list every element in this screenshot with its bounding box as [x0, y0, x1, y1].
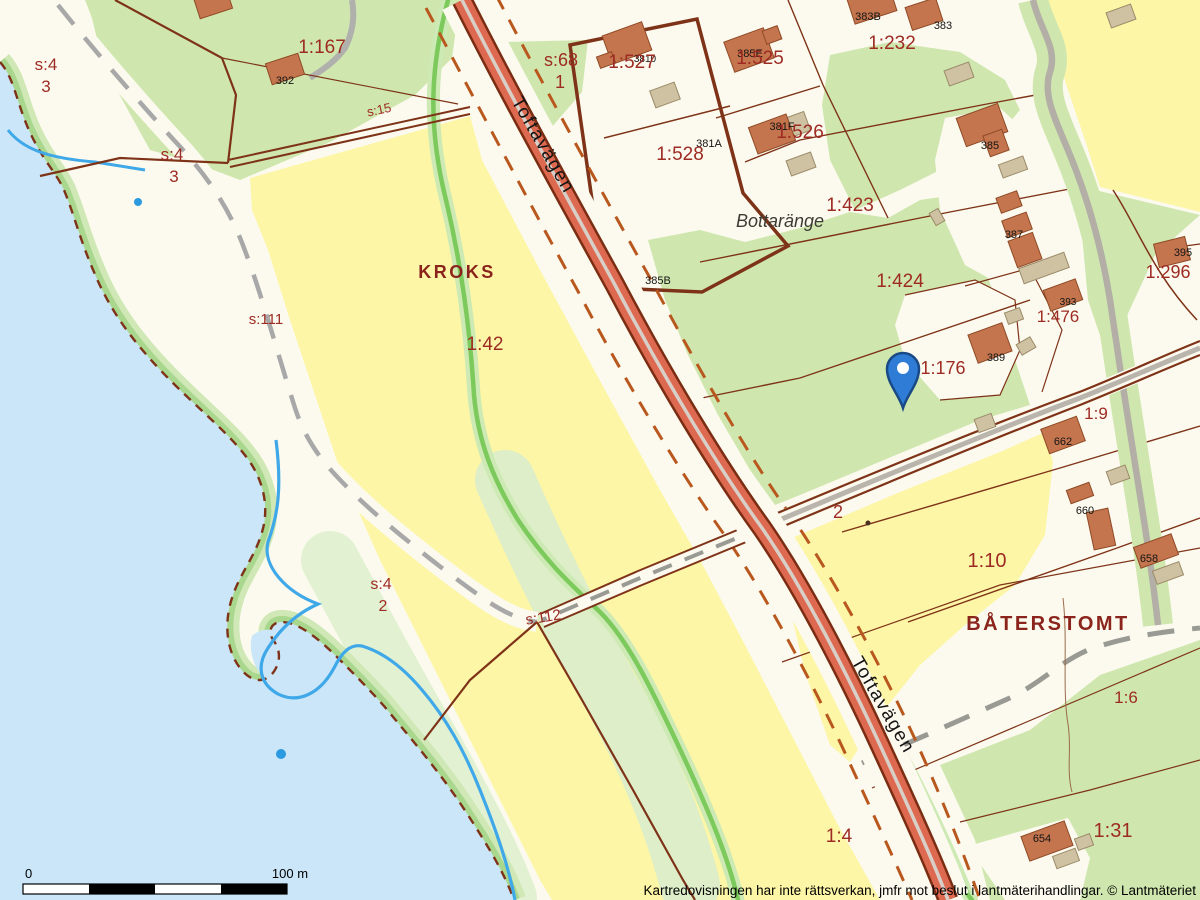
map-label-1-476: 1:476 — [1037, 307, 1080, 326]
map-label-1-4: 1:4 — [826, 826, 853, 847]
map-label-s-4: s:4 — [35, 55, 58, 74]
map-label-385b: 385B — [645, 275, 671, 287]
map-label-kroks: KROKS — [418, 262, 496, 282]
map-label-1-42: 1:42 — [467, 334, 504, 355]
scale-end-label: 100 m — [272, 866, 308, 881]
map-label-1-9: 1:9 — [1084, 404, 1108, 423]
map-label-658: 658 — [1140, 553, 1158, 565]
map-label-3: 3 — [169, 167, 178, 186]
map-label-1-31: 1:31 — [1094, 820, 1133, 842]
map-label-1-6: 1:6 — [1114, 688, 1138, 707]
map-label-1-424: 1:424 — [876, 271, 924, 292]
map-label-1: 1 — [555, 72, 565, 92]
map-label-654: 654 — [1033, 833, 1051, 845]
map-label-1-527: 1:527 — [608, 52, 656, 73]
map-label-395: 395 — [1174, 247, 1192, 259]
map-label-1-10: 1:10 — [968, 550, 1007, 572]
map-label-1-528: 1:528 — [656, 144, 704, 165]
map-label-2: 2 — [379, 598, 388, 615]
map-label-s-111: s:111 — [249, 311, 283, 328]
map-label-389: 389 — [987, 352, 1005, 364]
map-label-s-4: s:4 — [370, 576, 391, 593]
map-label-1-176: 1:176 — [920, 358, 965, 378]
map-label-1-525: 1:525 — [736, 48, 784, 69]
map-label-3: 3 — [41, 77, 50, 96]
map-label-1-296: 1:296 — [1145, 262, 1190, 282]
map-label-2: 2 — [833, 502, 843, 522]
map-label-1-423: 1:423 — [826, 195, 874, 216]
map-label-bottaränge: Bottaränge — [736, 211, 824, 231]
map-label-662: 662 — [1054, 436, 1072, 448]
map-label-1-232: 1:232 — [868, 33, 916, 54]
cadastral-map: 3810381A385B385E381F383B3833853873933953… — [0, 0, 1200, 900]
scale-start-label: 0 — [25, 866, 32, 881]
map-label-båterstomt: BÅTERSTOMT — [966, 611, 1130, 635]
map-label-1-526: 1:526 — [776, 122, 824, 143]
map-label-387: 387 — [1005, 229, 1023, 241]
map-label-383b: 383B — [855, 11, 881, 23]
map-label-s-4: s:4 — [161, 145, 184, 164]
map-label-392: 392 — [276, 75, 294, 87]
copyright-attribution: Kartredovisningen har inte rättsverkan, … — [644, 883, 1197, 898]
map-label-660: 660 — [1076, 505, 1094, 517]
map-label-383: 383 — [934, 20, 952, 32]
map-label-385: 385 — [981, 140, 999, 152]
map-label-s-68: s:68 — [544, 50, 578, 70]
map-label-1-167: 1:167 — [298, 37, 346, 58]
parcel-point — [866, 521, 871, 526]
